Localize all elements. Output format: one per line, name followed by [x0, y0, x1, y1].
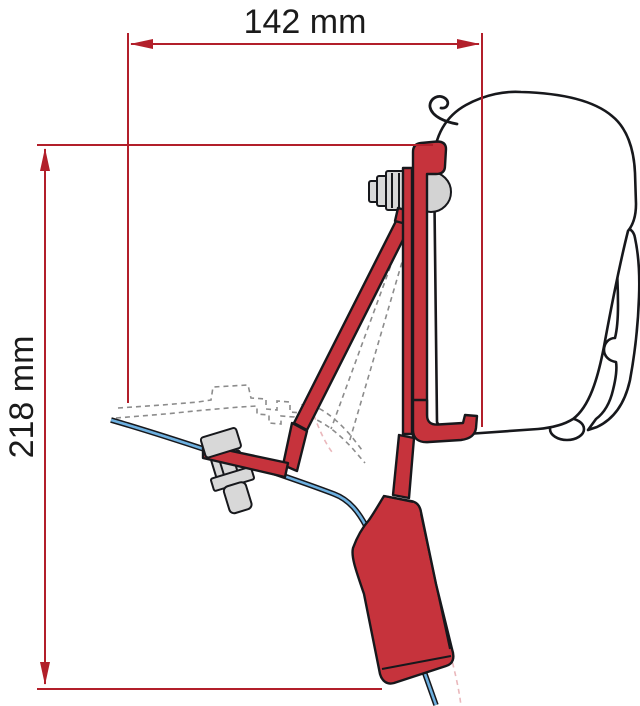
- arrow-head-left: [130, 39, 153, 49]
- arrow-head-down: [40, 662, 50, 685]
- case-body: [434, 92, 636, 435]
- width-dimension: 142 mm: [128, 3, 482, 427]
- width-dimension-label: 142 mm: [244, 3, 367, 41]
- technical-drawing: 142 mm 218 mm: [0, 0, 640, 706]
- clamp-shaft: [223, 481, 253, 515]
- awning-case: [430, 92, 639, 440]
- bracket-strap: [393, 435, 414, 498]
- awning-bolt: [369, 171, 405, 210]
- height-dimension-label: 218 mm: [3, 336, 41, 459]
- arrow-head-right: [457, 39, 480, 49]
- arrow-head-up: [40, 148, 50, 171]
- plate-strip-left: [403, 168, 412, 434]
- drawing-canvas: 142 mm 218 mm: [0, 0, 640, 706]
- bracket-strut: [294, 219, 410, 430]
